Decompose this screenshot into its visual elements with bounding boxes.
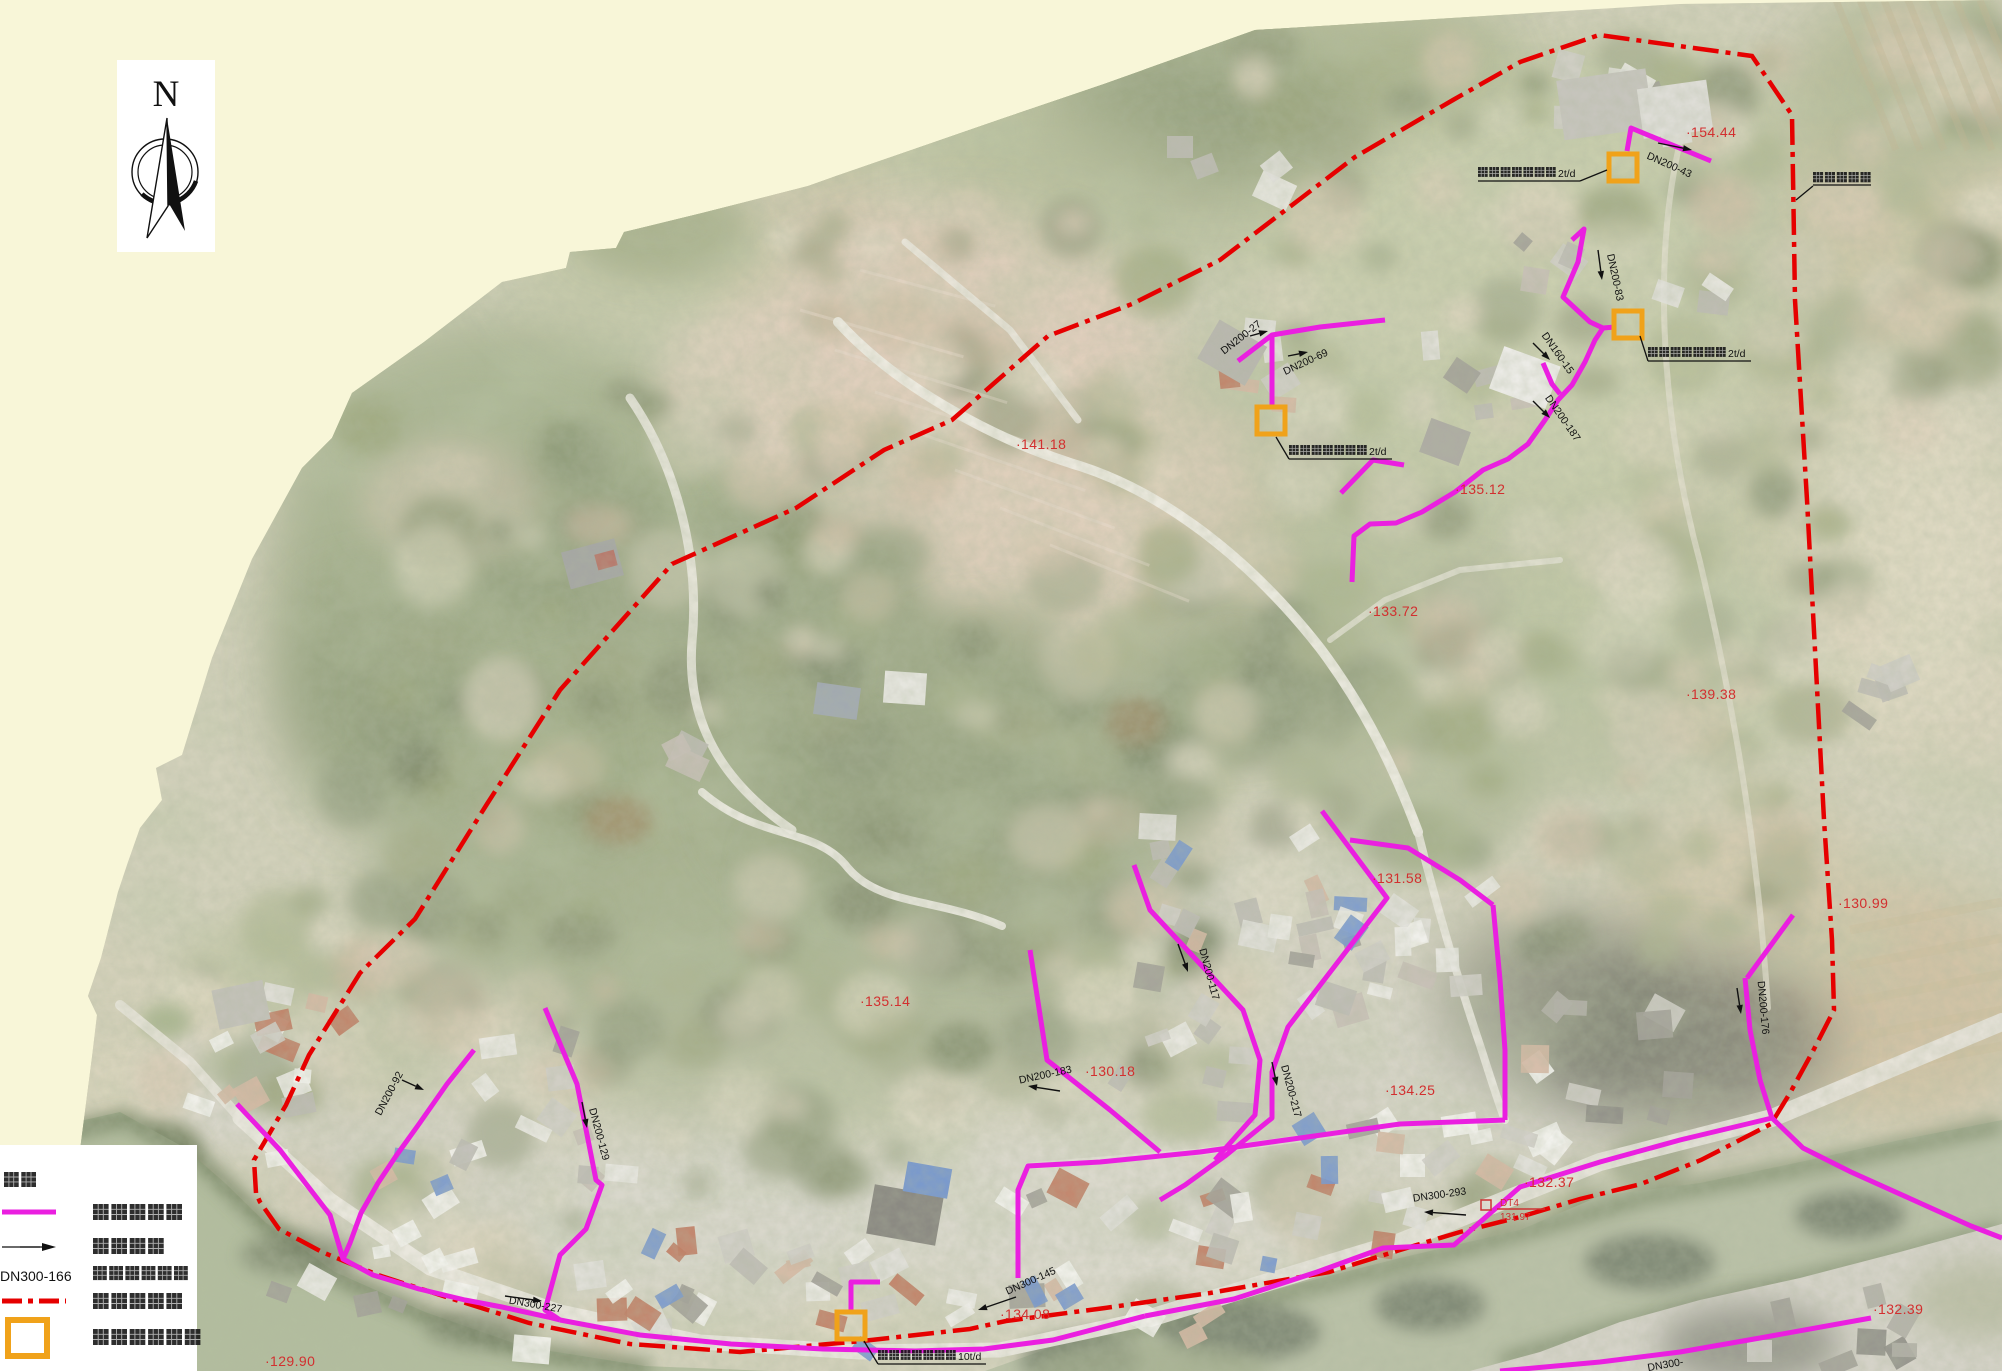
svg-text:DT4: DT4 <box>1500 1198 1519 1209</box>
svg-text:2t/d: 2t/d <box>1728 348 1746 360</box>
svg-text:·135.12: ·135.12 <box>1455 481 1505 497</box>
svg-text:DN300-166: DN300-166 <box>0 1268 72 1284</box>
svg-text:·129.90: ·129.90 <box>265 1353 315 1369</box>
svg-text:·133.72: ·133.72 <box>1368 603 1418 619</box>
svg-text:·130.18: ·130.18 <box>1085 1063 1135 1079</box>
svg-text:·154.44: ·154.44 <box>1686 124 1736 140</box>
svg-text:·130.99: ·130.99 <box>1838 895 1888 911</box>
svg-text:N: N <box>153 74 180 115</box>
svg-text:2t/d: 2t/d <box>1558 168 1576 180</box>
svg-text:10t/d: 10t/d <box>958 1351 982 1363</box>
svg-text:·139.38: ·139.38 <box>1686 686 1736 702</box>
svg-text:·132.37: ·132.37 <box>1524 1174 1574 1190</box>
svg-text:·131.58: ·131.58 <box>1372 870 1422 886</box>
svg-text:131.97: 131.97 <box>1500 1212 1531 1223</box>
svg-text:2t/d: 2t/d <box>1369 446 1387 458</box>
svg-text:·134.08: ·134.08 <box>1000 1306 1050 1322</box>
svg-text:·141.18: ·141.18 <box>1016 436 1066 452</box>
svg-text:·135.14: ·135.14 <box>860 993 910 1009</box>
svg-text:·134.25: ·134.25 <box>1385 1082 1435 1098</box>
svg-text:·132.39: ·132.39 <box>1873 1301 1923 1317</box>
